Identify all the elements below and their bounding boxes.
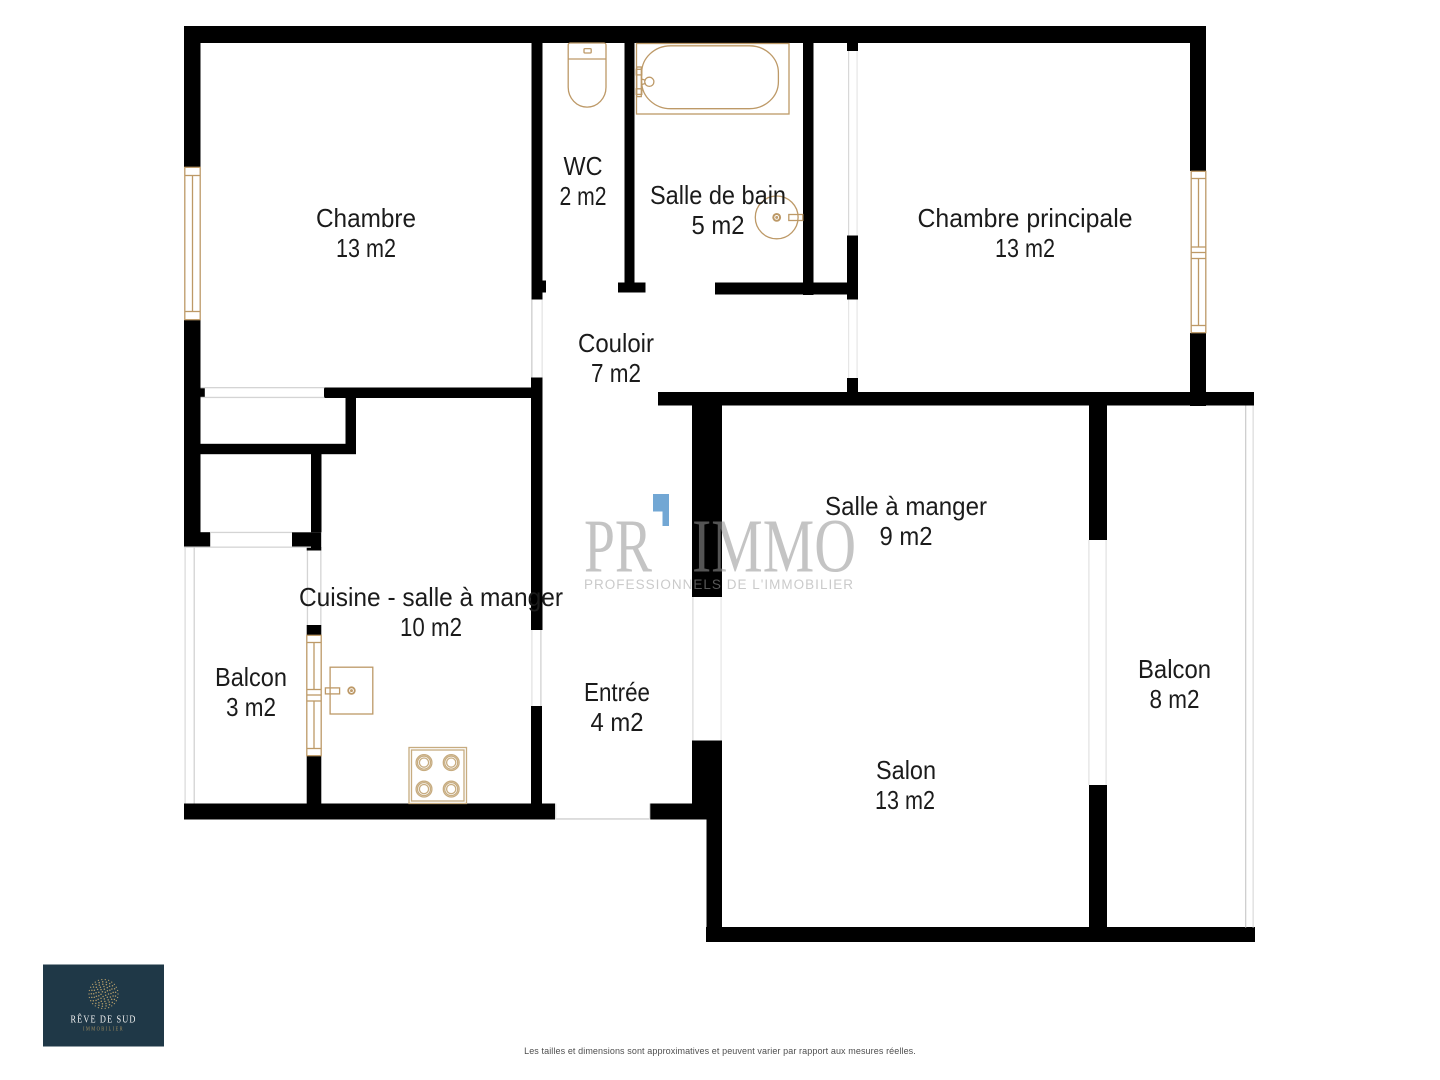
- svg-text:Chambre principale: Chambre principale: [918, 203, 1133, 233]
- svg-text:7 m2: 7 m2: [591, 358, 641, 388]
- svg-text:3 m2: 3 m2: [226, 692, 276, 722]
- svg-text:WC: WC: [564, 151, 603, 181]
- svg-text:Entrée: Entrée: [584, 677, 650, 707]
- svg-text:10 m2: 10 m2: [400, 612, 462, 642]
- svg-text:Couloir: Couloir: [578, 328, 654, 358]
- svg-text:Salle de bain: Salle de bain: [650, 180, 786, 210]
- svg-text:Salon: Salon: [876, 755, 936, 785]
- svg-text:13 m2: 13 m2: [336, 233, 396, 263]
- svg-text:RÊVE DE SUD: RÊVE DE SUD: [71, 1014, 137, 1026]
- svg-text:Balcon: Balcon: [215, 662, 287, 692]
- svg-text:5 m2: 5 m2: [692, 210, 745, 240]
- svg-text:Les tailles et dimensions sont: Les tailles et dimensions sont approxima…: [524, 1046, 916, 1056]
- svg-text:PR: PR: [584, 505, 652, 589]
- svg-text:13 m2: 13 m2: [995, 233, 1055, 263]
- svg-text:Chambre: Chambre: [316, 203, 416, 233]
- svg-text:IMMOBILIER: IMMOBILIER: [83, 1026, 124, 1033]
- svg-text:PROFESSIONNELS DE L'IMMOBILIER: PROFESSIONNELS DE L'IMMOBILIER: [584, 577, 853, 592]
- svg-text:2 m2: 2 m2: [560, 181, 607, 211]
- svg-text:9 m2: 9 m2: [880, 521, 933, 551]
- svg-text:Cuisine - salle à manger: Cuisine - salle à manger: [299, 582, 563, 612]
- svg-text:4 m2: 4 m2: [591, 707, 644, 737]
- svg-text:Balcon: Balcon: [1138, 654, 1211, 684]
- svg-text:8 m2: 8 m2: [1150, 684, 1200, 714]
- svg-text:IMMO: IMMO: [692, 505, 856, 589]
- svg-text:13 m2: 13 m2: [875, 785, 935, 815]
